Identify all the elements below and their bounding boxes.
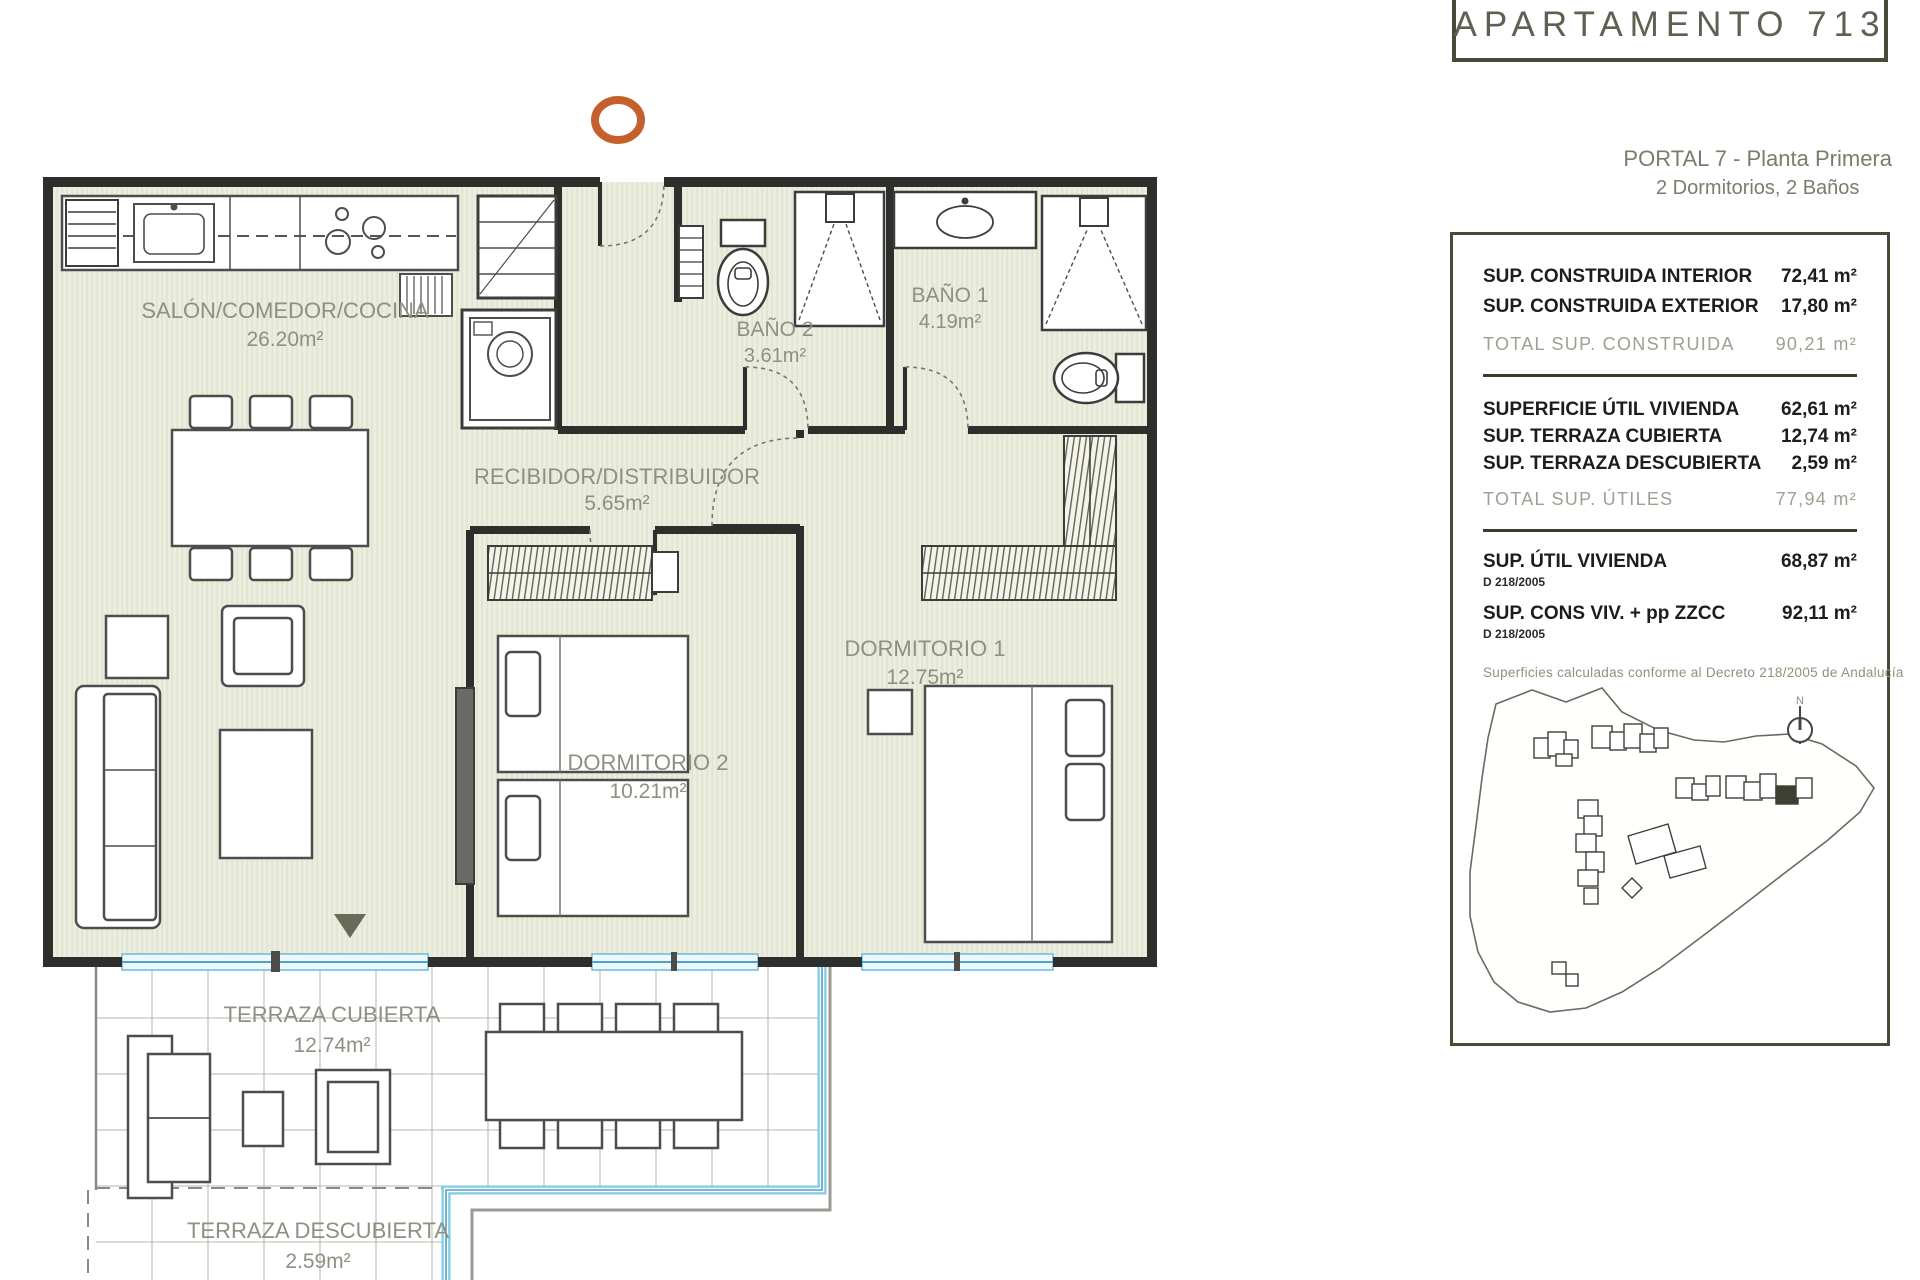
config-line: 2 Dormitorios, 2 Baños: [1623, 177, 1892, 200]
terrace-side-table: [243, 1092, 283, 1146]
surface-value: 12,74 m²: [1781, 423, 1857, 450]
room-area-terraza-cubierta: 12.74m²: [293, 1034, 370, 1057]
terrace-dining-set: [486, 1004, 742, 1148]
surface-total-row: TOTAL SUP. CONSTRUIDA 90,21 m²: [1483, 329, 1857, 359]
surface-label: SUP. TERRAZA CUBIERTA: [1483, 423, 1722, 450]
hall-closet: [478, 196, 556, 298]
surface-row: SUP. TERRAZA CUBIERTA 12,74 m²: [1483, 423, 1857, 450]
surface-value: 72,41 m²: [1781, 262, 1857, 292]
surface-row: SUPERFICIE ÚTIL VIVIENDA 62,61 m²: [1483, 396, 1857, 423]
kitchen-sink: [134, 204, 214, 263]
surface-row: SUP. CONSTRUIDA INTERIOR 72,41 m²: [1483, 262, 1857, 292]
surface-summary-panel: SUP. CONSTRUIDA INTERIOR 72,41 m² SUP. C…: [1450, 232, 1890, 1046]
shaft: [679, 226, 703, 298]
decree-note: Superficies calculadas conforme al Decre…: [1483, 665, 1857, 680]
washing-machine-closet: [462, 310, 556, 428]
surface-label: SUP. CONS VIV. + pp ZZCC: [1483, 603, 1725, 625]
terrace: TERRAZA CUBIERTA 12.74m² TERRAZA DESCUBI…: [88, 962, 830, 1280]
toilet-2: [718, 220, 768, 315]
entrance-marker-ring: [595, 100, 641, 140]
divider: [1483, 529, 1857, 532]
room-area-salon: 26.20m²: [246, 328, 323, 351]
room-label-bano1: BAÑO 1: [911, 283, 988, 307]
surface-value: 17,80 m²: [1781, 292, 1857, 322]
surface-value: 90,21 m²: [1776, 329, 1857, 359]
shower-2: [795, 192, 884, 326]
kitchen-counter: [62, 196, 458, 270]
side-table: [106, 616, 168, 678]
surface-value: 68,87 m²: [1781, 551, 1857, 573]
dining-table: [172, 430, 368, 546]
apartment-title-box: APARTAMENTO 713: [1452, 0, 1888, 62]
room-area-terraza-descubierta: 2.59m²: [285, 1250, 350, 1273]
decree-row: SUP. ÚTIL VIVIENDA D 218/2005 68,87 m²: [1483, 551, 1857, 589]
floorplan-sheet: TERRAZA CUBIERTA 12.74m² TERRAZA DESCUBI…: [0, 0, 1920, 1280]
surface-label: TOTAL SUP. ÚTILES: [1483, 484, 1674, 514]
surface-total-row: TOTAL SUP. ÚTILES 77,94 m²: [1483, 484, 1857, 514]
room-label-dorm2: DORMITORIO 2: [568, 750, 729, 775]
terrace-lounge-set: [128, 1036, 390, 1198]
surface-label: SUP. CONSTRUIDA EXTERIOR: [1483, 292, 1759, 322]
surface-label: SUP. TERRAZA DESCUBIERTA: [1483, 450, 1761, 477]
room-label-bano2: BAÑO 2: [736, 317, 813, 341]
tall-cabinet-dorm2: [456, 688, 474, 884]
portal-line: PORTAL 7 - Planta Primera: [1623, 146, 1892, 172]
surface-label: SUPERFICIE ÚTIL VIVIENDA: [1483, 396, 1739, 423]
portal-header: PORTAL 7 - Planta Primera 2 Dormitorios,…: [1623, 146, 1892, 200]
surface-row: SUP. TERRAZA DESCUBIERTA 2,59 m²: [1483, 450, 1857, 477]
vanity-1: [894, 192, 1036, 248]
shower-1: [1042, 196, 1146, 330]
room-area-bano1: 4.19m²: [919, 311, 982, 333]
surface-row: SUP. CONSTRUIDA EXTERIOR 17,80 m²: [1483, 292, 1857, 322]
room-label-recibidor: RECIBIDOR/DISTRIBUIDOR: [474, 464, 760, 489]
divider: [1483, 374, 1857, 377]
room-label-terraza-cubierta: TERRAZA CUBIERTA: [224, 1002, 441, 1027]
room-label-terraza-descubierta: TERRAZA DESCUBIERTA: [187, 1218, 449, 1243]
room-label-dorm1: DORMITORIO 1: [845, 636, 1006, 661]
decree-row: SUP. CONS VIV. + pp ZZCC D 218/2005 92,1…: [1483, 603, 1857, 641]
fridge: [66, 200, 118, 266]
apartment-title: APARTAMENTO 713: [1453, 5, 1886, 45]
dining-set: [172, 396, 368, 580]
coffee-table: [220, 730, 312, 858]
decree-reference: D 218/2005: [1483, 627, 1725, 641]
room-area-bano2: 3.61m²: [744, 345, 807, 367]
surface-label: SUP. ÚTIL VIVIENDA: [1483, 551, 1667, 573]
surface-value: 77,94 m²: [1776, 484, 1857, 514]
room-area-dorm1: 12.75m²: [886, 666, 963, 689]
surface-value: 62,61 m²: [1781, 396, 1857, 423]
surface-label: SUP. CONSTRUIDA INTERIOR: [1483, 262, 1752, 292]
nightstand-dorm1: [868, 690, 912, 734]
decree-reference: D 218/2005: [1483, 575, 1667, 589]
surface-label: TOTAL SUP. CONSTRUIDA: [1483, 329, 1735, 359]
toilet-1: [1054, 353, 1144, 403]
room-area-dorm2: 10.21m²: [609, 780, 686, 803]
surface-value: 2,59 m²: [1792, 450, 1857, 477]
surface-value: 92,11 m²: [1782, 603, 1857, 625]
room-area-recibidor: 5.65m²: [584, 492, 649, 515]
terrace-dining-table: [486, 1032, 742, 1120]
room-label-salon: SALÓN/COMEDOR/COCINA: [141, 298, 429, 323]
